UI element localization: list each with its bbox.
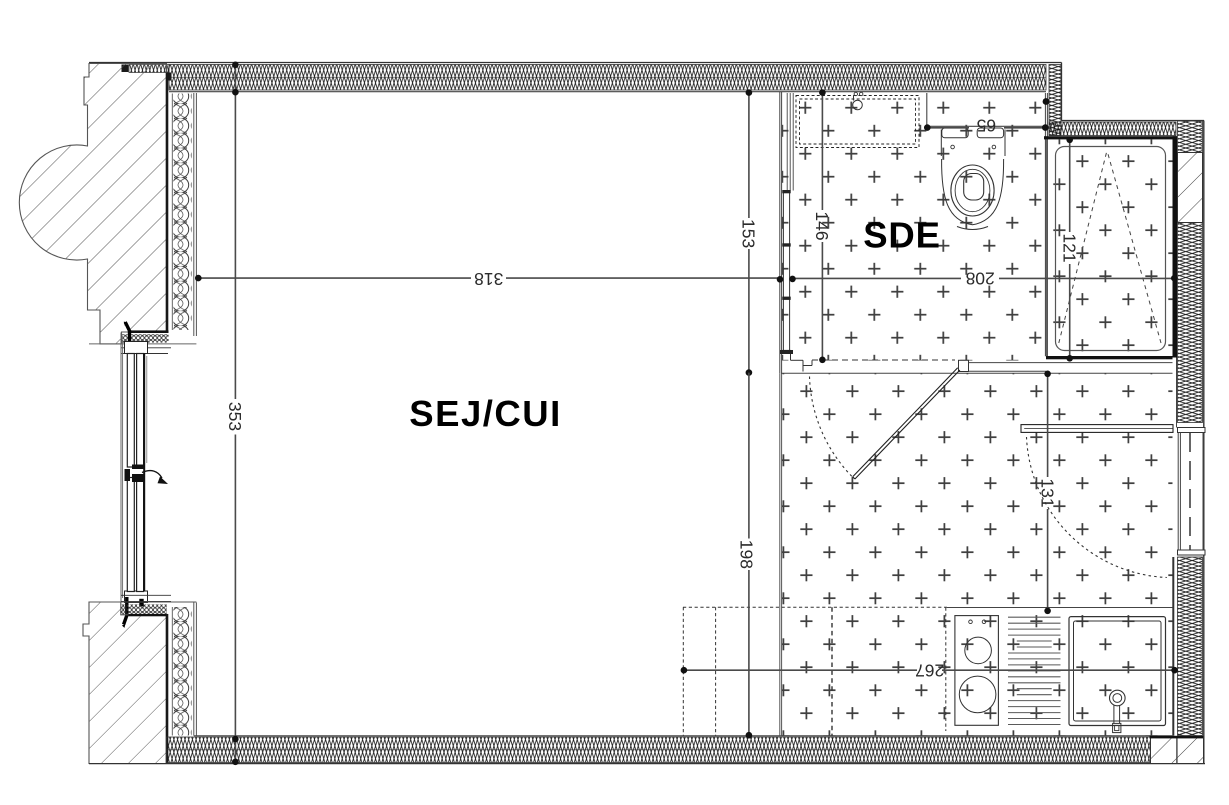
svg-text:131: 131	[1037, 478, 1057, 507]
svg-text:65: 65	[977, 115, 996, 135]
svg-text:146: 146	[812, 211, 832, 240]
svg-text:198: 198	[737, 540, 757, 569]
svg-text:SEJ/CUI: SEJ/CUI	[409, 393, 562, 434]
svg-text:121: 121	[1059, 233, 1079, 262]
svg-text:SDE: SDE	[863, 215, 940, 256]
svg-text:267: 267	[915, 660, 944, 680]
svg-text:318: 318	[474, 269, 503, 289]
svg-text:153: 153	[739, 219, 759, 248]
svg-text:208: 208	[966, 269, 995, 289]
svg-text:353: 353	[225, 402, 245, 431]
